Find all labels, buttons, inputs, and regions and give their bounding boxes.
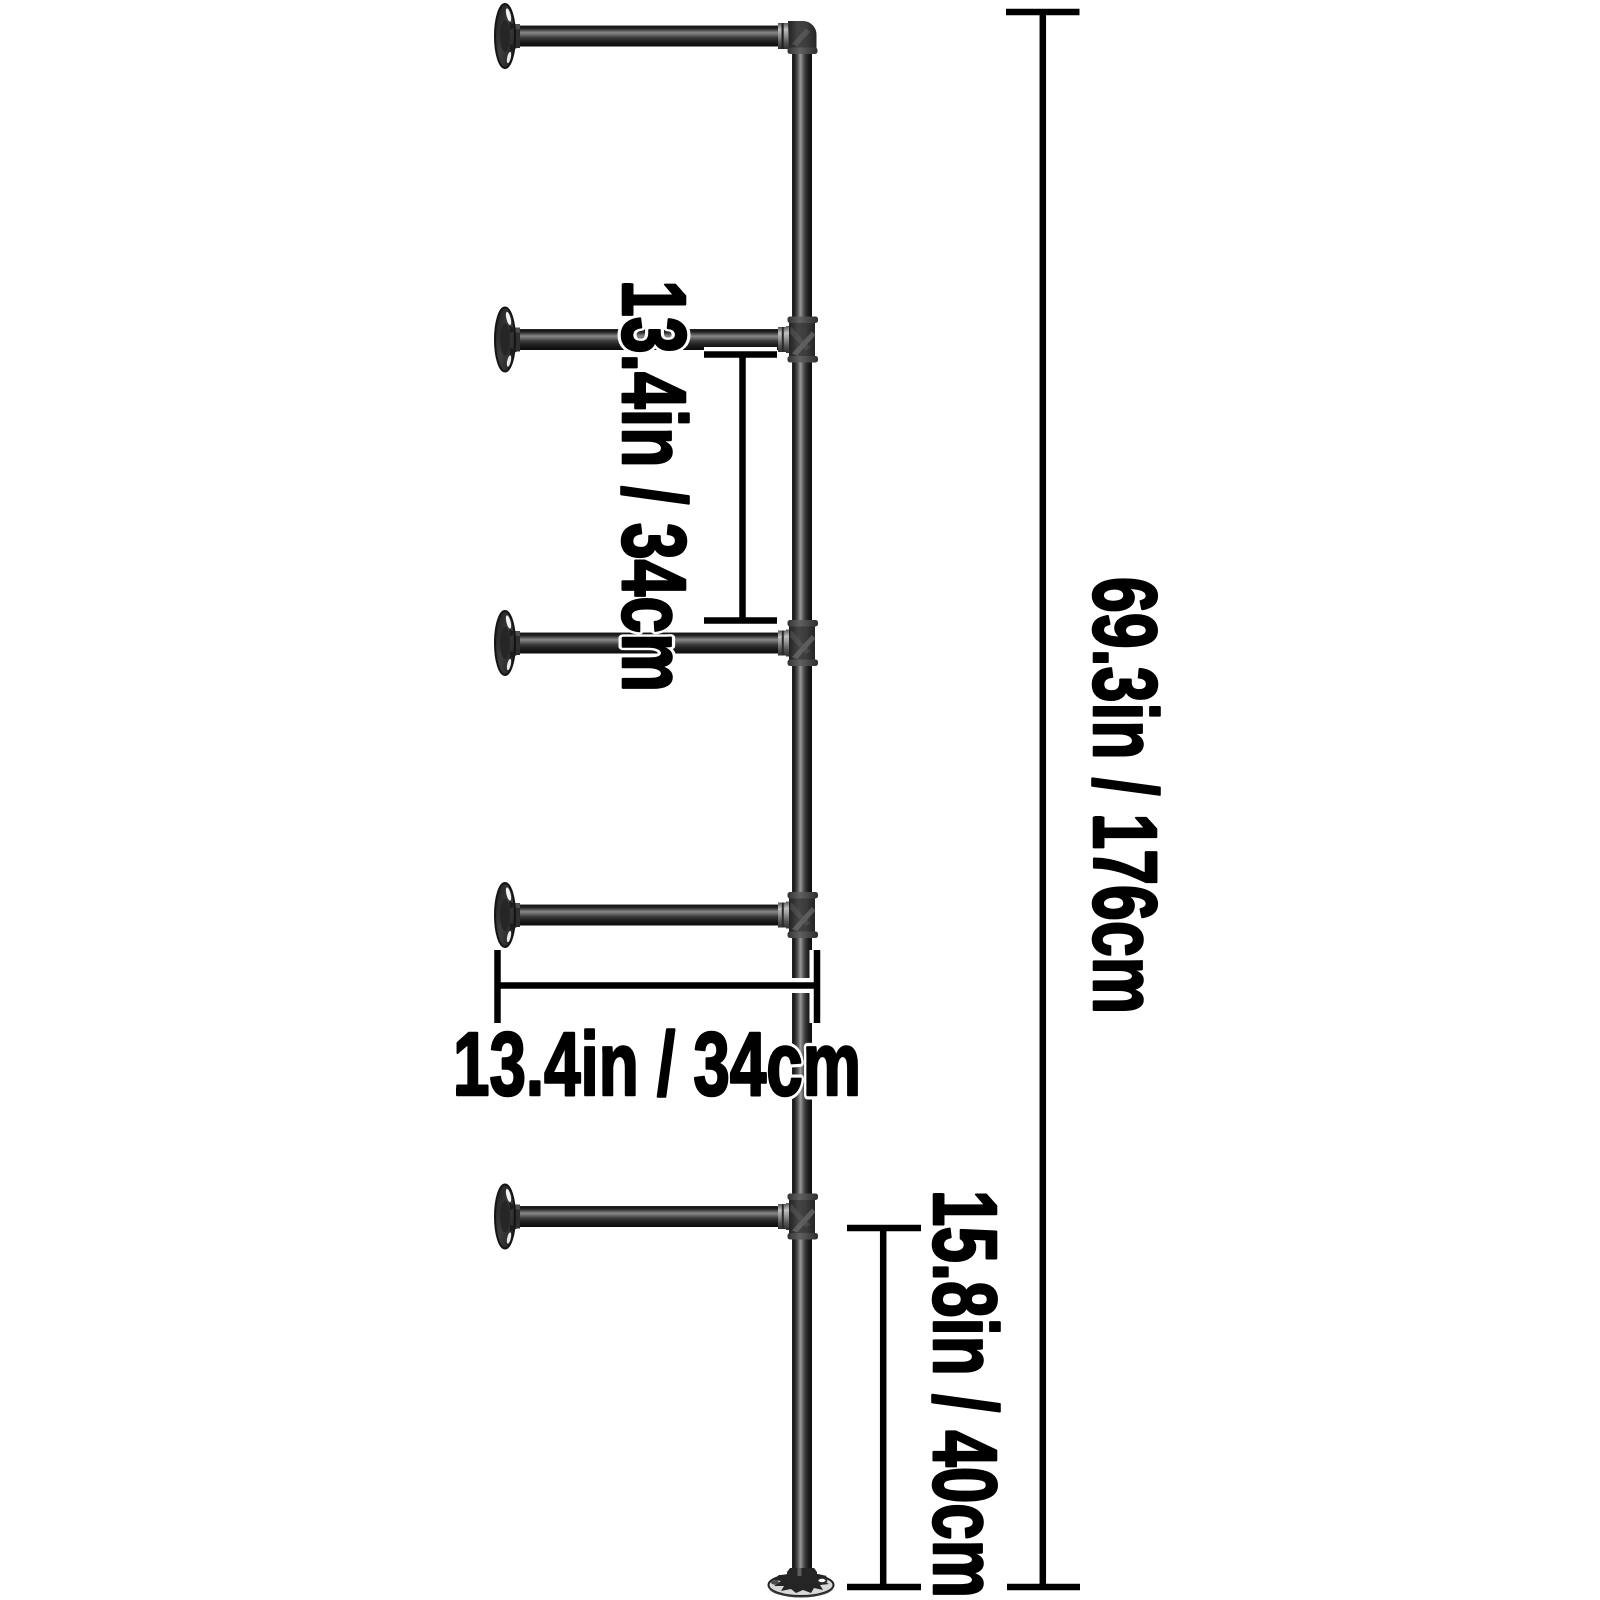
- svg-text:13.4in / 34cm: 13.4in / 34cm: [603, 280, 703, 692]
- svg-text:13.4in / 34cm: 13.4in / 34cm: [453, 1015, 861, 1115]
- svg-text:15.8in / 40cm: 15.8in / 40cm: [914, 1190, 1014, 1598]
- svg-text:69.3in / 176cm: 69.3in / 176cm: [1074, 577, 1174, 1014]
